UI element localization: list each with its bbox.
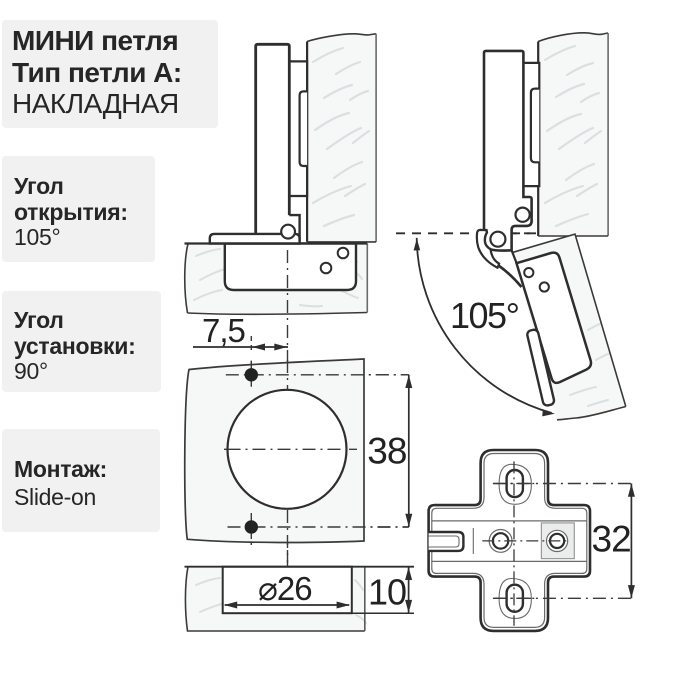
svg-text:38: 38 xyxy=(367,431,406,472)
svg-text:32: 32 xyxy=(592,519,631,560)
svg-text:⌀26: ⌀26 xyxy=(258,570,312,607)
svg-text:7,5: 7,5 xyxy=(202,312,245,349)
svg-text:105°: 105° xyxy=(450,295,519,336)
svg-text:10: 10 xyxy=(368,572,406,613)
